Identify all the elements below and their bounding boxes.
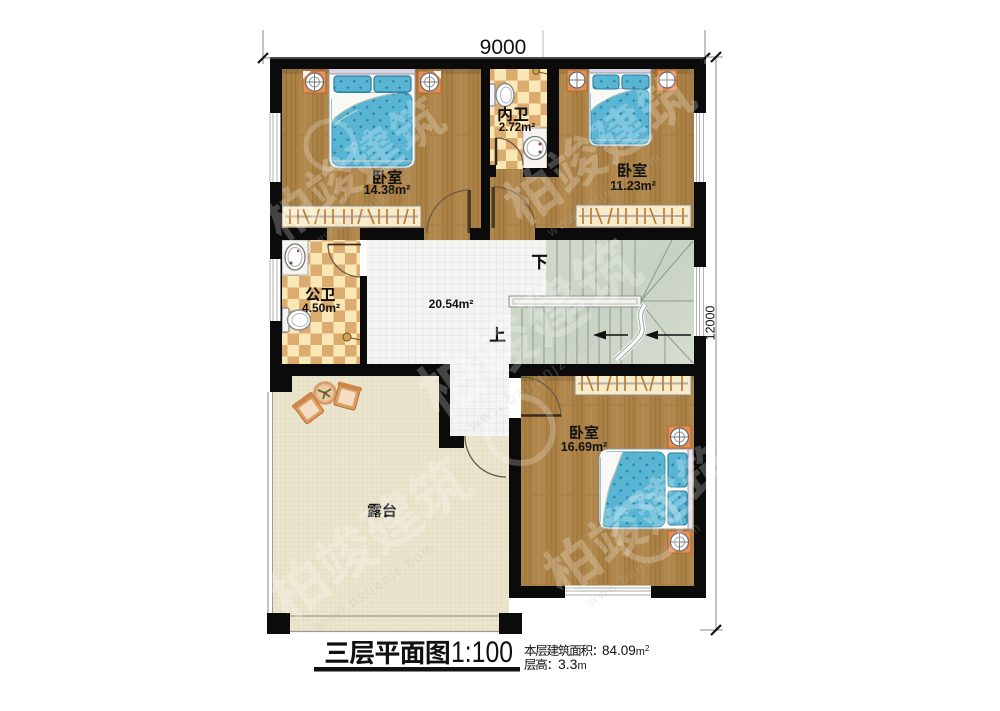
svg-text:2.72m²: 2.72m²	[499, 122, 536, 134]
svg-text:16.69m²: 16.69m²	[561, 440, 608, 454]
svg-text:20.54m²: 20.54m²	[429, 297, 474, 311]
svg-text:12000: 12000	[704, 306, 718, 341]
svg-text:9000: 9000	[480, 36, 527, 59]
svg-text:4.50m²: 4.50m²	[302, 301, 340, 315]
svg-text:1:100: 1:100	[451, 636, 513, 669]
svg-text:84.09m2: 84.09m2	[602, 643, 650, 658]
